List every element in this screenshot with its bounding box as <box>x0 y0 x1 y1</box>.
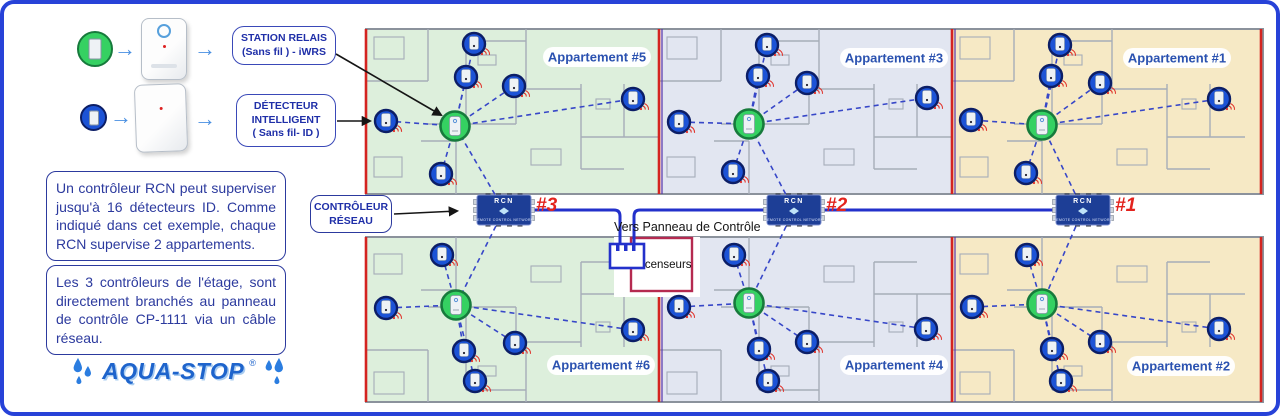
relay-device-image <box>141 18 187 80</box>
detector-icon <box>748 338 775 360</box>
wireless-link <box>1042 83 1100 125</box>
detector-icon <box>622 319 649 341</box>
apartment-label-pill <box>1127 356 1235 376</box>
wireless-link <box>733 124 749 172</box>
wireless-link <box>1042 99 1219 125</box>
detector-icon <box>375 297 402 319</box>
rcn-controller: RCNREMOTE CONTROL NETWORK#2 <box>764 194 848 227</box>
network-cable <box>532 210 620 245</box>
wireless-link <box>679 303 749 307</box>
relay-label-line: (Sans fil ) - iWRS <box>237 46 331 60</box>
wireless-link <box>1042 210 1083 304</box>
detector-marker <box>80 104 107 131</box>
detector-icon <box>961 296 988 318</box>
detector-label-box: DÉTECTEUR INTELLIGENT ( Sans fil- ID ) <box>236 94 336 147</box>
wireless-link <box>455 126 504 210</box>
detector-icon <box>1049 34 1076 56</box>
detector-icon <box>503 75 530 97</box>
rcn-subtitle: REMOTE CONTROL NETWORK <box>475 218 534 222</box>
arrow-right-icon: → <box>194 38 216 60</box>
wireless-link <box>386 305 456 308</box>
wireless-link <box>679 122 749 124</box>
detector-icon <box>464 370 491 392</box>
wireless-link <box>749 303 807 342</box>
apartment-label-pill <box>547 355 655 375</box>
wireless-link <box>456 305 475 381</box>
wireless-link <box>1042 76 1051 125</box>
apartment-label-pill <box>543 47 651 67</box>
detector-icon <box>756 34 783 56</box>
apartment-label: Appartement #5 <box>548 50 646 65</box>
wireless-link <box>456 305 515 343</box>
controller-label-line: RÉSEAU <box>313 214 389 228</box>
wireless-link <box>749 83 807 124</box>
detector-icon <box>1041 338 1068 360</box>
relay-station-icon <box>735 110 764 139</box>
detector-icon <box>796 331 823 353</box>
detector-icon <box>463 33 490 55</box>
relay-station-icon <box>1028 111 1057 140</box>
wireless-link <box>749 303 768 381</box>
elevator-label: Ascenseurs <box>631 259 691 271</box>
registered-mark: ® <box>249 358 256 368</box>
detector-icon <box>723 244 750 266</box>
relay-station-icon <box>735 289 764 318</box>
wireless-link <box>734 255 749 303</box>
annotation-arrow <box>394 211 457 214</box>
apartment-label: Appartement #1 <box>1128 51 1226 66</box>
wireless-link <box>749 303 759 349</box>
diagram-canvas: → → STATION RELAIS (Sans fil ) - iWRS → … <box>0 0 1280 416</box>
detector-icon <box>757 370 784 392</box>
rcn-diamond-icon <box>1078 208 1088 215</box>
device-led <box>159 107 162 110</box>
wireless-link <box>442 255 456 305</box>
rcn-subtitle: REMOTE CONTROL NETWORK <box>765 218 824 222</box>
detector-icon <box>375 110 402 132</box>
wireless-link <box>456 210 504 305</box>
apartment-label: Appartement #4 <box>845 358 944 373</box>
network-controller-label-box: CONTRÔLEUR RÉSEAU <box>310 195 392 233</box>
wireless-link <box>456 305 464 351</box>
network-cable <box>634 210 766 245</box>
detector-label-line: ( Sans fil- ID ) <box>241 127 331 141</box>
wireless-link <box>386 121 455 126</box>
detector-icon <box>1089 331 1116 353</box>
rcn-number: #3 <box>536 195 558 216</box>
wireless-link <box>1042 304 1061 381</box>
detector-icon <box>1040 65 1067 87</box>
detector-icon <box>1050 370 1077 392</box>
arrow-right-icon: → <box>194 108 216 130</box>
rcn-number: #1 <box>1115 195 1136 216</box>
wireless-link <box>749 76 758 124</box>
wireless-link <box>971 120 1042 125</box>
wireless-link <box>455 77 466 126</box>
logo-text: AQUA-STOP <box>102 358 244 385</box>
wireless-link <box>749 124 794 210</box>
rcn-number: #2 <box>826 195 848 216</box>
rcn-title: RCN <box>494 198 514 205</box>
apartment-label: Appartement #6 <box>552 358 650 373</box>
arrow-right-icon: → <box>114 38 136 60</box>
detector-icon <box>430 163 457 185</box>
apartment-block <box>659 29 952 194</box>
detector-icon <box>668 296 695 318</box>
wireless-link <box>1027 255 1042 304</box>
wireless-link <box>455 44 474 126</box>
relay-station-label-box: STATION RELAIS (Sans fil ) - iWRS <box>232 26 336 65</box>
apartment-label-pill <box>1123 48 1231 68</box>
wireless-link <box>1042 304 1100 342</box>
apartment-label: Appartement #2 <box>1132 359 1230 374</box>
apartment-label-pill <box>840 355 948 375</box>
detector-label-line: DÉTECTEUR <box>241 100 331 114</box>
apartment-block <box>366 29 659 194</box>
wireless-link <box>1042 304 1052 349</box>
device-glyph <box>89 110 99 125</box>
wireless-link <box>456 305 633 330</box>
wireless-link <box>455 86 514 126</box>
detector-icon <box>747 65 774 87</box>
wireless-link <box>749 98 927 124</box>
detector-icon <box>915 318 942 340</box>
detector-icon <box>431 244 458 266</box>
detector-icon <box>1016 244 1043 266</box>
device-base <box>151 64 177 68</box>
apartment-block <box>952 29 1263 194</box>
apartment-block <box>952 237 1263 402</box>
detector-icon <box>1208 88 1235 110</box>
wireless-link <box>749 45 767 124</box>
detector-icon <box>455 66 482 88</box>
wireless-link <box>1042 45 1060 125</box>
device-glyph <box>89 39 102 60</box>
rcn-subtitle: REMOTE CONTROL NETWORK <box>1054 218 1113 222</box>
note-controllers-wiring: Les 3 contrôleurs de l'étage, sont direc… <box>46 265 286 355</box>
detector-icon <box>453 340 480 362</box>
wireless-link <box>749 303 926 329</box>
wireless-link <box>1042 304 1219 329</box>
apartment-block <box>659 237 952 402</box>
apartment-block <box>366 237 659 402</box>
rcn-title: RCN <box>1073 198 1093 205</box>
wireless-link <box>441 126 455 174</box>
controller-label-line: CONTRÔLEUR <box>313 200 389 214</box>
junction-box <box>610 244 644 268</box>
detector-icon <box>722 161 749 183</box>
detector-icon <box>916 87 943 109</box>
relay-station-marker <box>77 31 113 67</box>
water-drops-icon <box>261 356 287 386</box>
apartment-label-pill <box>840 48 948 68</box>
detector-icon <box>622 88 649 110</box>
rcn-diamond-icon <box>789 208 799 215</box>
relay-station-icon <box>441 112 470 141</box>
control-panel-route-label: Vers Panneau de Contrôle <box>614 220 761 234</box>
detector-icon <box>796 72 823 94</box>
water-drops-icon <box>71 356 97 386</box>
detector-icon <box>960 109 987 131</box>
elevator-box <box>631 238 692 291</box>
detector-icon <box>1089 72 1116 94</box>
detector-device-image <box>134 83 188 153</box>
relay-label-line: STATION RELAIS <box>237 32 331 46</box>
detector-label-line: INTELLIGENT <box>241 114 331 128</box>
wireless-link <box>1026 125 1042 173</box>
relay-station-icon <box>442 291 471 320</box>
relay-station-icon <box>1028 290 1057 319</box>
rcn-controller: RCNREMOTE CONTROL NETWORK#3 <box>474 194 558 227</box>
rcn-title: RCN <box>784 198 804 205</box>
device-logo-icon <box>157 24 171 38</box>
wireless-link <box>455 99 633 126</box>
note-rcn-supervision: Un contrôleur RCN peut superviser jusqu'… <box>46 171 286 261</box>
rcn-diamond-icon <box>499 208 509 215</box>
wireless-link <box>972 304 1042 307</box>
apartment-label: Appartement #3 <box>845 51 943 66</box>
detector-icon <box>1015 162 1042 184</box>
device-led <box>163 45 166 48</box>
detector-icon <box>1208 318 1235 340</box>
detector-icon <box>504 332 531 354</box>
arrow-right-icon: → <box>110 106 132 128</box>
annotation-arrow <box>336 54 441 115</box>
rcn-controller: RCNREMOTE CONTROL NETWORK#1 <box>1053 194 1137 227</box>
aqua-stop-logo: AQUA-STOP ® <box>62 356 296 386</box>
wireless-link <box>749 210 794 303</box>
detector-icon <box>668 111 695 133</box>
wireless-link <box>1042 125 1083 210</box>
